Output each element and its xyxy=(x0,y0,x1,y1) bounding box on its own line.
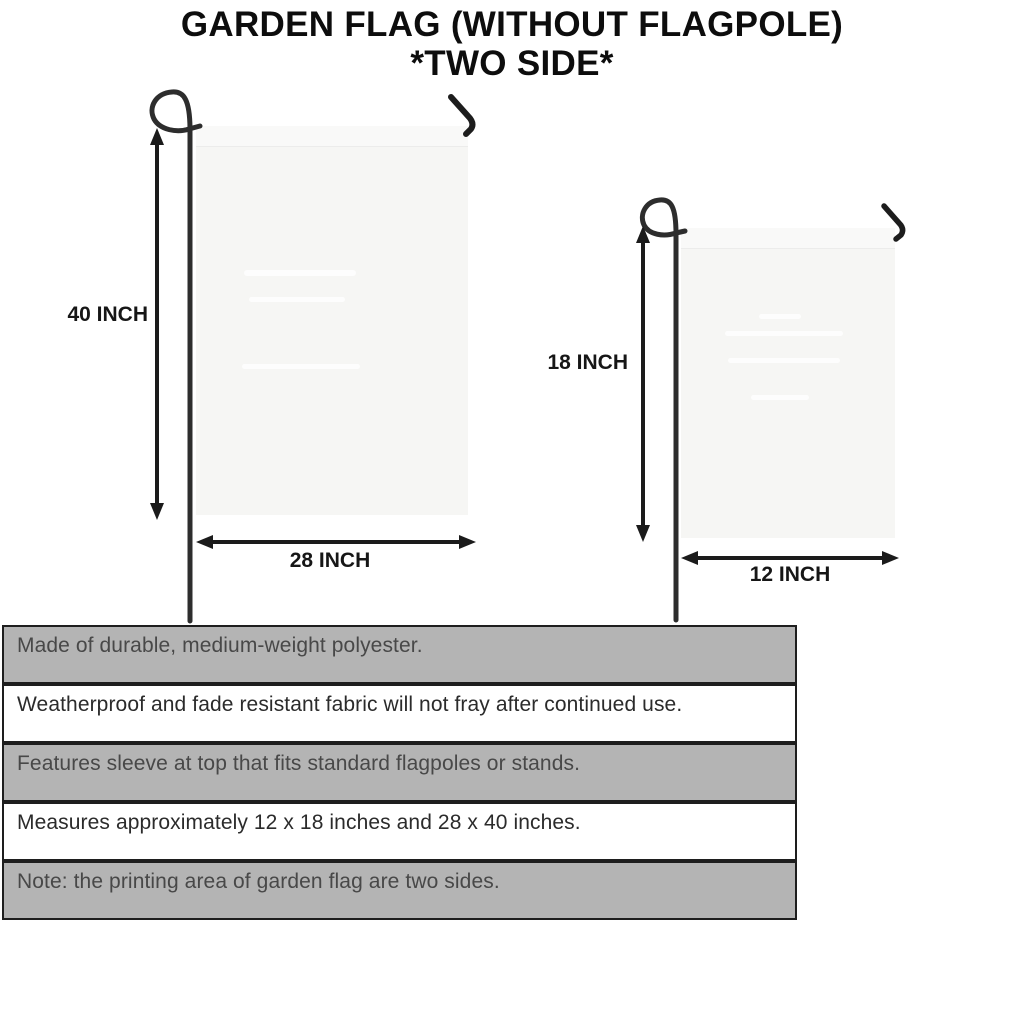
garden-flag-infographic: GARDEN FLAG (WITHOUT FLAGPOLE) *TWO SIDE… xyxy=(0,0,1024,1024)
feature-row-sleeve: Features sleeve at top that fits standar… xyxy=(2,743,797,802)
flag-crease xyxy=(728,358,840,363)
small-flag-pole-icon xyxy=(642,200,685,620)
feature-list: Made of durable, medium-weight polyester… xyxy=(2,625,797,920)
small-flag xyxy=(681,228,895,538)
flag-crease xyxy=(242,364,360,369)
small-flag-height-arrow xyxy=(641,243,645,525)
large-flag-width-arrow xyxy=(213,540,459,544)
flag-crease xyxy=(725,331,843,336)
feature-row-measures: Measures approximately 12 x 18 inches an… xyxy=(2,802,797,861)
title-line-1: GARDEN FLAG (WITHOUT FLAGPOLE) xyxy=(0,5,1024,44)
small-flag-width-arrow xyxy=(698,556,882,560)
large-flag-pole-icon xyxy=(152,92,200,621)
small-flag-height-label: 18 INCH xyxy=(500,351,628,375)
flag-crease xyxy=(244,270,356,276)
flag-crease xyxy=(759,314,801,319)
flag-crease xyxy=(249,297,345,302)
small-flag-width-label: 12 INCH xyxy=(690,563,890,587)
small-flag-sleeve xyxy=(681,228,895,249)
large-flag xyxy=(196,126,468,515)
large-flag-height-label: 40 INCH xyxy=(48,303,148,327)
feature-row-material: Made of durable, medium-weight polyester… xyxy=(2,625,797,684)
flag-crease xyxy=(751,395,809,400)
large-flag-width-label: 28 INCH xyxy=(230,549,430,573)
large-flag-sleeve xyxy=(196,126,468,147)
feature-row-weatherproof: Weatherproof and fade resistant fabric w… xyxy=(2,684,797,743)
large-flag-height-arrow xyxy=(155,145,159,503)
page-title: GARDEN FLAG (WITHOUT FLAGPOLE) *TWO SIDE… xyxy=(0,5,1024,83)
feature-row-note: Note: the printing area of garden flag a… xyxy=(2,861,797,920)
title-line-2: *TWO SIDE* xyxy=(0,44,1024,83)
